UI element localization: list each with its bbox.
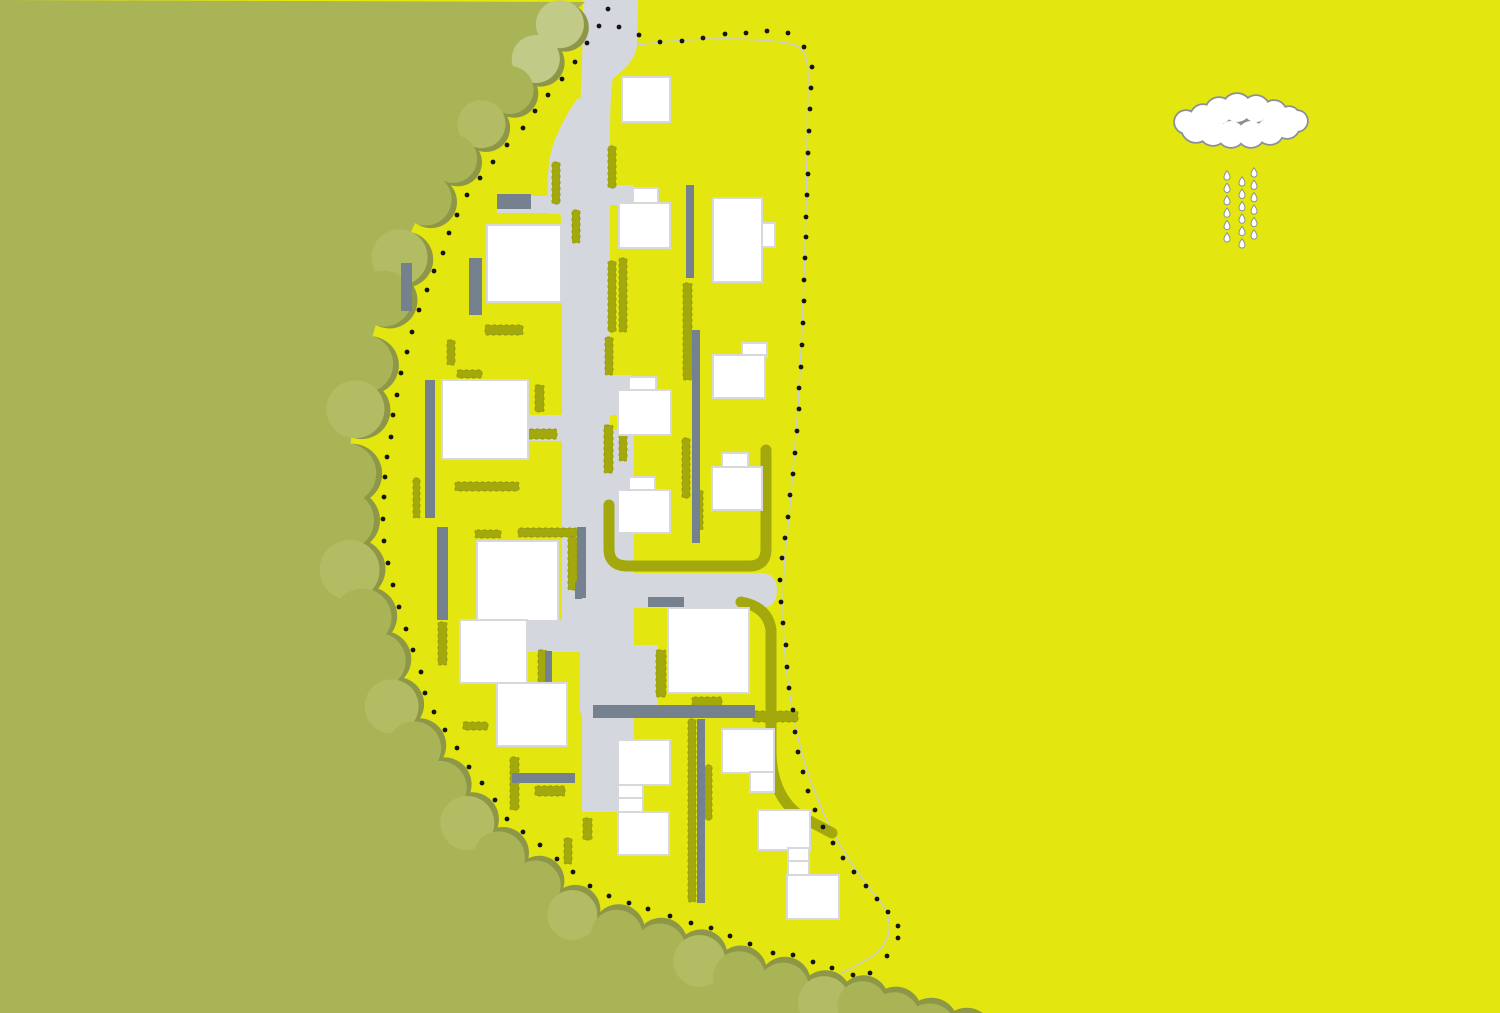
building (477, 541, 558, 621)
boundary-dot (689, 921, 694, 926)
boundary-dot (875, 897, 880, 902)
boundary-dot (383, 475, 388, 480)
boundary-dot (787, 686, 792, 691)
boundary-dot (478, 176, 483, 181)
building (487, 225, 561, 302)
boundary-dot (800, 343, 805, 348)
building (713, 355, 765, 398)
boundary-dot (797, 407, 802, 412)
boundary-dot (778, 578, 783, 583)
hedge (608, 261, 616, 332)
road (580, 645, 658, 713)
boundary-dot (802, 299, 807, 304)
boundary-dot (389, 435, 394, 440)
boundary-dot (885, 954, 890, 959)
boundary-dot (607, 894, 612, 899)
boundary-dot (555, 857, 560, 862)
boundary-dot (813, 808, 818, 813)
wall (686, 185, 694, 278)
boundary-dot (802, 45, 807, 50)
building (722, 729, 774, 773)
tree-crown (326, 380, 384, 438)
building (622, 77, 670, 122)
hedge (438, 622, 447, 665)
boundary-dot (709, 926, 714, 931)
wall (401, 263, 412, 311)
boundary-dot (382, 539, 387, 544)
boundary-dot (538, 843, 543, 848)
boundary-dot (617, 25, 622, 30)
boundary-dot (791, 708, 796, 713)
boundary-dot (493, 798, 498, 803)
building (758, 810, 810, 850)
boundary-dot (391, 583, 396, 588)
boundary-dot (404, 627, 409, 632)
building (618, 785, 643, 798)
boundary-dot (395, 393, 400, 398)
boundary-dot (797, 386, 802, 391)
boundary-dot (802, 278, 807, 283)
boundary-dot (796, 750, 801, 755)
boundary-dot (805, 193, 810, 198)
hedge (535, 786, 565, 796)
building (618, 798, 643, 812)
boundary-dot (627, 901, 632, 906)
boundary-dot (786, 31, 791, 36)
building (762, 223, 775, 247)
boundary-dot (803, 256, 808, 261)
building (713, 198, 762, 282)
building (497, 683, 567, 746)
boundary-dot (411, 648, 416, 653)
building (460, 620, 527, 683)
hedge (457, 370, 482, 378)
wall (697, 719, 705, 903)
boundary-dot (637, 33, 642, 38)
hedge (656, 650, 666, 697)
boundary-dot (382, 495, 387, 500)
tree-crown (713, 951, 765, 1003)
wall (512, 773, 575, 783)
hedge (688, 719, 696, 902)
boundary-dot (606, 7, 611, 12)
wall (425, 380, 435, 518)
boundary-dot (841, 856, 846, 861)
building (618, 390, 671, 435)
boundary-dot (701, 36, 706, 41)
hedge (485, 325, 523, 335)
boundary-dot (455, 746, 460, 751)
boundary-dot (405, 350, 410, 355)
boundary-dot (441, 251, 446, 256)
hedge (447, 340, 455, 365)
boundary-dot (571, 870, 576, 875)
boundary-dot (381, 517, 386, 522)
hedge (564, 838, 572, 864)
building (629, 377, 656, 391)
hedge (413, 478, 420, 518)
boundary-dot (786, 515, 791, 520)
boundary-dot (791, 953, 796, 958)
hedge (535, 385, 544, 412)
boundary-dot (680, 39, 685, 44)
boundary-dot (780, 556, 785, 561)
hedge (475, 530, 501, 538)
cloud-puff (1279, 107, 1299, 127)
hedge (552, 162, 560, 204)
boundary-dot (585, 41, 590, 46)
boundary-dot (852, 870, 857, 875)
boundary-dot (546, 93, 551, 98)
boundary-dot (788, 493, 793, 498)
tree-crown (429, 135, 477, 183)
boundary-dot (425, 288, 430, 293)
boundary-dot (781, 621, 786, 626)
boundary-dot (480, 781, 485, 786)
boundary-dot (419, 670, 424, 675)
boundary-dot (795, 429, 800, 434)
building (618, 740, 670, 785)
boundary-dot (864, 884, 869, 889)
boundary-dot (785, 665, 790, 670)
boundary-dot (385, 455, 390, 460)
building (787, 875, 839, 919)
boundary-dot (804, 215, 809, 220)
tree-crown (547, 890, 597, 940)
site-plan-canvas (0, 0, 1500, 1013)
boundary-dot (455, 213, 460, 218)
boundary-dot (896, 936, 901, 941)
wall (497, 194, 531, 209)
wall (469, 258, 482, 315)
hedge (604, 425, 613, 473)
boundary-dot (744, 31, 749, 36)
hedge (463, 722, 488, 730)
boundary-dot (588, 884, 593, 889)
hedge (455, 482, 519, 491)
boundary-dot (809, 86, 814, 91)
boundary-dot (432, 710, 437, 715)
wall (545, 651, 552, 683)
building (788, 861, 809, 875)
boundary-dot (521, 830, 526, 835)
boundary-dot (868, 971, 873, 976)
building (618, 490, 670, 533)
building (442, 380, 528, 459)
boundary-dot (447, 231, 452, 236)
boundary-dot (658, 40, 663, 45)
wall (575, 582, 582, 599)
boundary-dot (799, 365, 804, 370)
boundary-dot (533, 109, 538, 114)
boundary-dot (467, 765, 472, 770)
boundary-dot (793, 451, 798, 456)
boundary-dot (831, 841, 836, 846)
boundary-dot (810, 65, 815, 70)
boundary-dot (804, 235, 809, 240)
boundary-dot (851, 973, 856, 978)
boundary-dot (505, 817, 510, 822)
hedge (510, 757, 519, 810)
boundary-dot (806, 172, 811, 177)
boundary-dot (597, 24, 602, 29)
boundary-dot (646, 907, 651, 912)
boundary-dot (386, 561, 391, 566)
boundary-dot (765, 29, 770, 34)
boundary-dot (771, 951, 776, 956)
boundary-dot (432, 269, 437, 274)
hedge (605, 337, 613, 375)
building (619, 203, 670, 248)
boundary-dot (811, 960, 816, 965)
site-plan-drawing (0, 0, 1500, 1013)
boundary-dot (806, 151, 811, 156)
boundary-dot (784, 643, 789, 648)
hedge (518, 528, 577, 537)
boundary-dot (896, 924, 901, 929)
boundary-dot (748, 942, 753, 947)
building (788, 848, 809, 861)
boundary-dot (521, 126, 526, 131)
hedge (608, 146, 616, 188)
boundary-dot (443, 728, 448, 733)
boundary-dot (808, 107, 813, 112)
wall (593, 705, 755, 718)
boundary-dot (830, 966, 835, 971)
hedge (619, 258, 627, 332)
boundary-dot (728, 934, 733, 939)
boundary-dot (417, 308, 422, 313)
building (750, 772, 774, 792)
hedge (705, 765, 712, 820)
building (668, 608, 749, 693)
hedge (572, 210, 580, 243)
wall (648, 597, 684, 607)
boundary-dot (391, 413, 396, 418)
boundary-dot (573, 60, 578, 65)
boundary-dot (410, 330, 415, 335)
boundary-dot (791, 472, 796, 477)
hedge (683, 283, 692, 380)
boundary-dot (560, 77, 565, 82)
boundary-dot (465, 193, 470, 198)
boundary-dot (886, 910, 891, 915)
boundary-dot (806, 789, 811, 794)
building (712, 467, 762, 510)
boundary-dot (723, 32, 728, 37)
building (618, 812, 669, 855)
building (629, 477, 655, 491)
tree-crown (400, 174, 452, 226)
boundary-dot (397, 605, 402, 610)
boundary-dot (779, 600, 784, 605)
wall (692, 330, 700, 543)
building (722, 453, 748, 467)
road (527, 620, 582, 652)
boundary-dot (821, 825, 826, 830)
boundary-dot (668, 914, 673, 919)
boundary-dot (807, 129, 812, 134)
boundary-dot (801, 321, 806, 326)
building (633, 188, 658, 204)
boundary-dot (423, 691, 428, 696)
boundary-dot (505, 143, 510, 148)
boundary-dot (491, 160, 496, 165)
wall (437, 527, 448, 620)
boundary-dot (801, 770, 806, 775)
boundary-dot (793, 730, 798, 735)
boundary-dot (783, 536, 788, 541)
hedge (682, 438, 690, 498)
boundary-dot (399, 371, 404, 376)
hedge (583, 818, 592, 840)
